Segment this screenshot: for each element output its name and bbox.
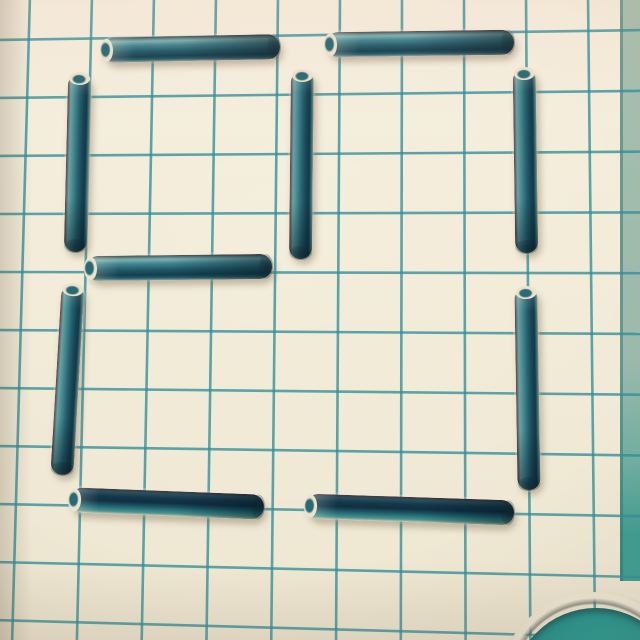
stick-top-left-horizontal — [102, 34, 280, 63]
stick-bottom-right-horizontal — [306, 494, 515, 526]
stick-bottom-left-horizontal — [70, 487, 265, 519]
photo-of-stick-puzzle-on-graph-paper — [0, 0, 640, 640]
stick-top-right-horizontal — [326, 30, 514, 58]
stick-upper-right-vertical — [513, 69, 539, 253]
stick-middle-left-horizontal — [86, 254, 272, 281]
stick-lower-right-vertical — [514, 288, 540, 490]
stick-upper-middle-vertical — [289, 71, 314, 259]
sticks-layer — [0, 0, 640, 640]
stick-lower-left-vertical — [50, 284, 84, 475]
stick-upper-left-vertical — [64, 74, 91, 253]
